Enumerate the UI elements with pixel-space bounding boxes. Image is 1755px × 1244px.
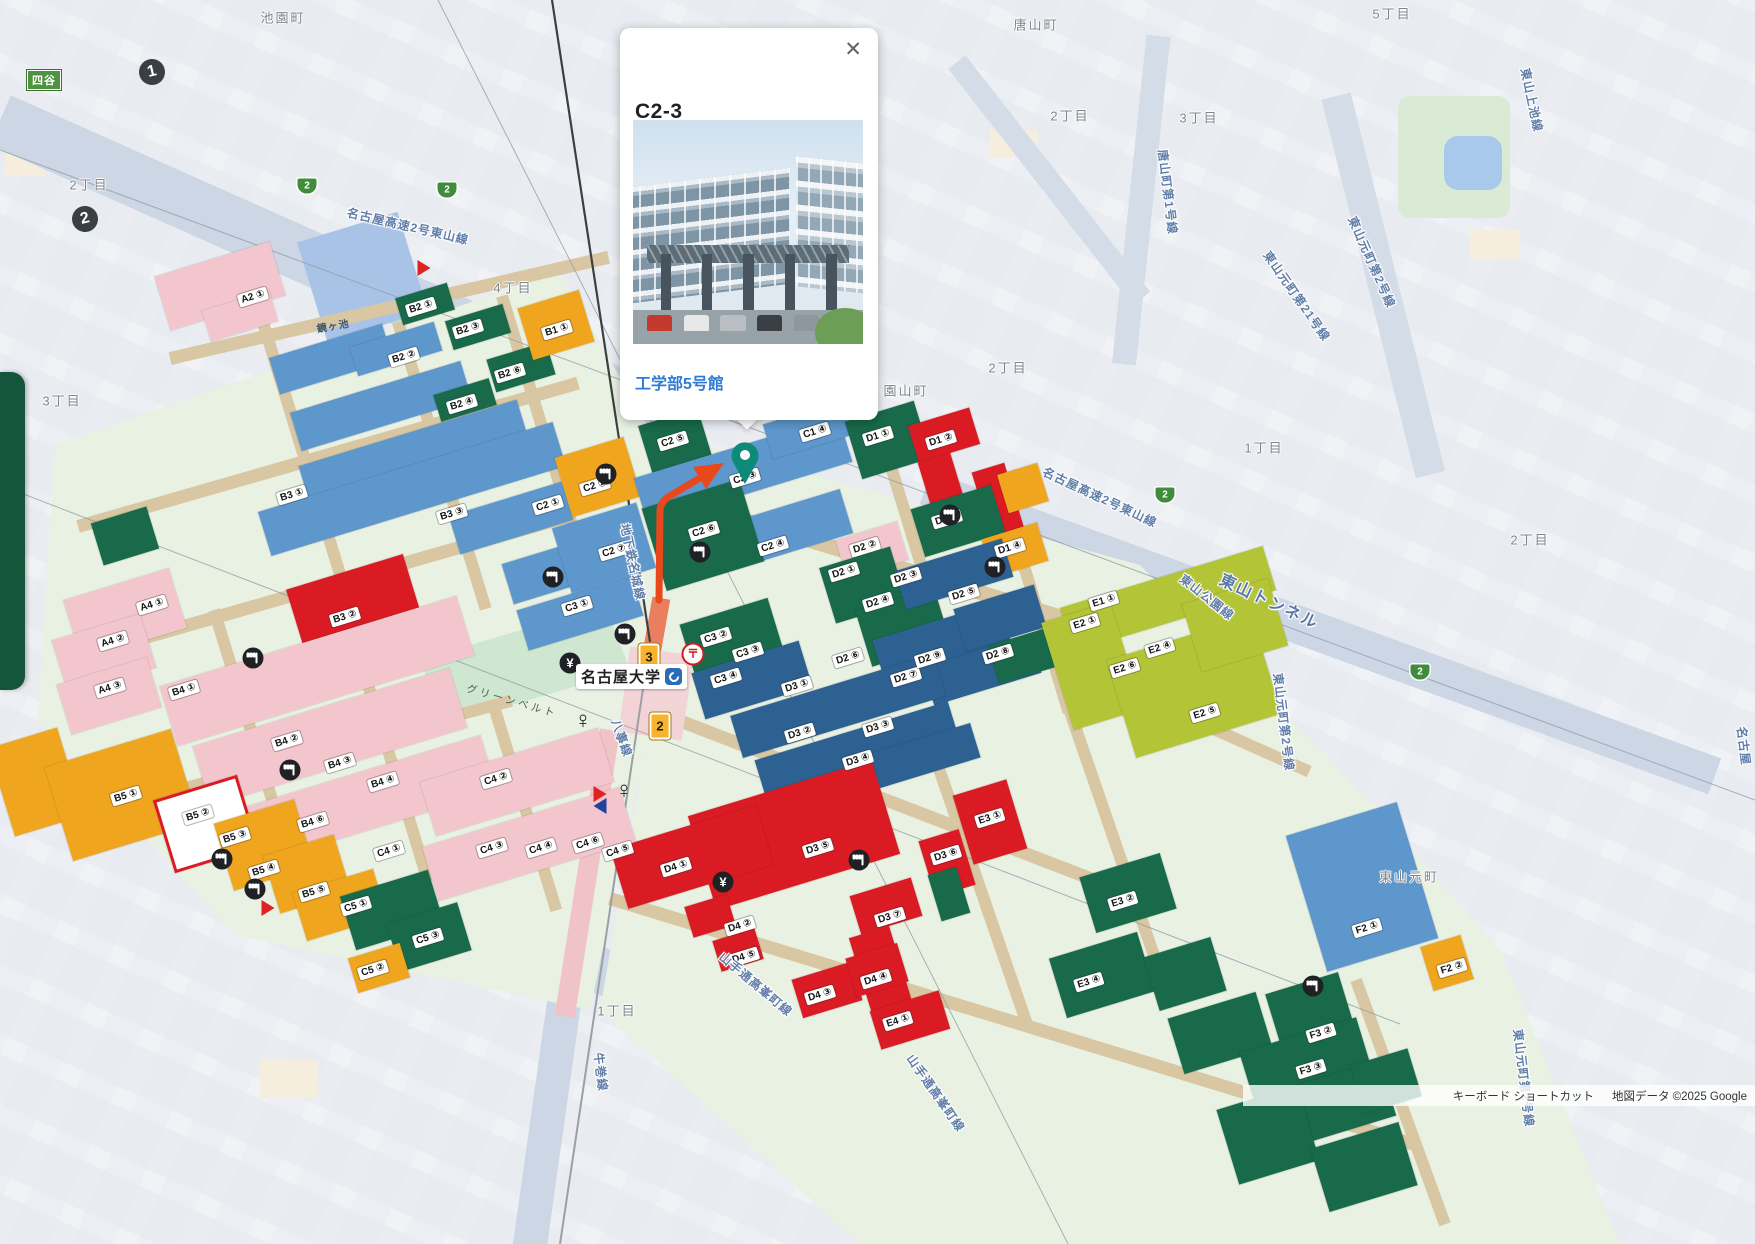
road-label: 八事線 (607, 717, 636, 759)
photo-car (720, 315, 745, 331)
town-label: 3丁目 (42, 391, 81, 410)
subway-station-label[interactable]: 名古屋大学 (576, 664, 687, 689)
town-label: 園山町 (883, 381, 928, 400)
building-label[interactable]: B5 ② (182, 804, 215, 825)
building-label[interactable]: C5 ② (357, 959, 390, 980)
building-label[interactable]: B4 ① (168, 679, 201, 700)
route-shield: 2 (298, 179, 317, 194)
road-label: 名古屋高速2号東山線 (1040, 463, 1160, 531)
town-label: 2丁目 (988, 358, 1027, 377)
restaurant-icon (690, 542, 711, 563)
road-label: グリーンベルト (465, 681, 559, 721)
building-label[interactable]: C2 ⑤ (657, 430, 690, 451)
building-label[interactable]: F3 ③ (1295, 1059, 1326, 1080)
building-label[interactable]: E4 ① (882, 1010, 914, 1031)
photo-car (757, 315, 782, 331)
building-label[interactable]: B3 ③ (436, 503, 469, 524)
road-label: 東山トンネル (1216, 566, 1324, 633)
building-label[interactable]: D4 ① (660, 856, 693, 877)
restaurant-icon (280, 760, 301, 781)
building-label[interactable]: E1 ① (1088, 590, 1120, 611)
restaurant-icon (245, 879, 266, 900)
building-label[interactable]: C3 ② (700, 626, 733, 647)
building-label[interactable]: D2 ② (849, 536, 882, 557)
building-label[interactable]: B2 ⑥ (494, 362, 527, 383)
gate-number-marker: 2 (69, 203, 101, 235)
road-label: 東山元町第2号線 (1344, 213, 1400, 310)
building-label[interactable]: C4 ⑤ (602, 840, 635, 861)
building-label[interactable]: D2 ⑨ (914, 647, 947, 668)
building-label[interactable]: C3 ④ (710, 667, 743, 688)
building-photo[interactable] (633, 120, 863, 344)
building-label[interactable]: D2 ⑦ (890, 666, 923, 687)
building-label[interactable]: A2 ① (237, 286, 270, 307)
blue-triangle-marker (594, 798, 607, 814)
road-label: 東山元町第2号線 (1510, 1028, 1539, 1128)
town-label: 池園町 (260, 8, 305, 27)
building-label[interactable]: C5 ③ (412, 927, 445, 948)
restaurant-icon (1303, 976, 1324, 997)
town-label: 2丁目 (1050, 106, 1089, 125)
building-label[interactable]: C3 ③ (732, 641, 765, 662)
building-label[interactable]: D3 ⑦ (874, 906, 907, 927)
building-label[interactable]: D4 ④ (860, 968, 893, 989)
town-label: 2丁目 (1510, 530, 1549, 549)
restaurant-icon (849, 850, 870, 871)
photo-car (647, 315, 672, 331)
building-label[interactable]: D1 ① (862, 425, 895, 446)
yen-icon: ¥ (713, 872, 734, 893)
road-label: 牛巻線 (590, 1052, 612, 1093)
station-name: 名古屋大学 (581, 666, 661, 687)
building-label[interactable]: B2 ③ (452, 318, 485, 339)
restaurant-icon (543, 567, 564, 588)
town-label: 5丁目 (1372, 4, 1411, 23)
keyboard-shortcuts-button[interactable]: キーボード ショートカット (1453, 1088, 1594, 1104)
road-label: 東山元町第2号線 (1270, 672, 1299, 772)
building-label[interactable]: C4 ④ (525, 837, 558, 858)
building-label[interactable]: D2 ④ (862, 591, 895, 612)
building-label[interactable]: D3 ② (784, 722, 817, 743)
gate-number-marker: 1 (136, 56, 168, 88)
building-link[interactable]: 工学部5号館 (635, 370, 724, 394)
building-label[interactable]: B5 ④ (248, 859, 281, 880)
town-label: 1丁目 (1244, 438, 1283, 457)
building-label[interactable]: D3 ③ (862, 716, 895, 737)
building-label[interactable]: B4 ⑥ (297, 811, 330, 832)
building-label[interactable]: A4 ② (97, 630, 130, 651)
route-shield: 2 (1156, 488, 1175, 503)
building-label[interactable]: D2 ① (828, 561, 861, 582)
map-canvas[interactable]: A2 ①B2 ①B2 ③B2 ②B2 ⑥B2 ④B1 ①B3 ①B3 ③C2 ①… (0, 0, 1755, 1244)
building-label[interactable]: C2 ① (532, 494, 565, 515)
building-label[interactable]: C4 ② (480, 768, 513, 789)
building-label[interactable]: C4 ⑥ (572, 832, 605, 853)
map-attribution: キーボード ショートカット 地図データ ©2025 Google (1243, 1085, 1755, 1106)
restaurant-icon (940, 505, 961, 526)
building-label[interactable]: D4 ② (724, 915, 757, 936)
town-label: 4丁目 (493, 278, 532, 297)
road-label: 東山上池線 (1517, 66, 1547, 133)
road-label: 東山元町第21号線 (1260, 248, 1335, 345)
road-label: 名古屋 (1733, 726, 1755, 767)
building-label[interactable]: D3 ⑥ (930, 844, 963, 865)
building-label[interactable]: B1 ① (541, 319, 574, 340)
building-label[interactable]: B2 ④ (446, 393, 479, 414)
post-office-icon: 〒 (682, 643, 705, 666)
building-label[interactable]: D1 ④ (994, 537, 1027, 558)
building-label[interactable]: D4 ③ (804, 984, 837, 1005)
building-label[interactable]: C3 ① (561, 595, 594, 616)
building-label[interactable]: E2 ④ (1144, 637, 1176, 658)
town-label: 1丁目 (597, 1001, 636, 1020)
photo-car (684, 315, 709, 331)
building-label[interactable]: D3 ⑤ (802, 837, 835, 858)
subway-logo-icon (665, 668, 682, 685)
building-label[interactable]: E3 ④ (1073, 971, 1105, 992)
building-label[interactable]: B4 ② (271, 730, 304, 751)
building-label[interactable]: B5 ① (110, 785, 143, 806)
building-label[interactable]: D2 ⑧ (982, 643, 1015, 664)
building-label[interactable]: E3 ① (974, 807, 1006, 828)
road-label: 鏡ヶ池 (315, 315, 350, 336)
restaurant-icon (243, 648, 264, 669)
building-label[interactable]: B4 ④ (367, 771, 400, 792)
building-label[interactable]: C2 ③ (729, 467, 762, 488)
restaurant-icon (985, 557, 1006, 578)
building-label[interactable]: D2 ③ (890, 566, 923, 587)
building-label[interactable]: F2 ② (1436, 958, 1467, 979)
building-label[interactable]: D2 ⑥ (832, 647, 865, 668)
building-label[interactable]: B5 ⑤ (298, 881, 331, 902)
building-label[interactable]: C5 ① (340, 895, 373, 916)
building-label[interactable]: C2 ⑥ (688, 520, 721, 541)
building-label[interactable]: A4 ③ (94, 677, 127, 698)
restaurant-icon (212, 849, 233, 870)
building-label[interactable]: D3 ④ (842, 749, 875, 770)
red-triangle-marker (262, 900, 275, 916)
building-label[interactable]: E3 ② (1107, 890, 1139, 911)
building-label[interactable]: D3 ① (781, 675, 814, 696)
town-label: 3丁目 (1179, 108, 1218, 127)
building-label[interactable]: F2 ① (1351, 918, 1382, 939)
building-label[interactable]: F3 ② (1305, 1023, 1336, 1044)
map-data-copyright: 地図データ ©2025 Google (1612, 1088, 1747, 1104)
building-label[interactable]: C2 ④ (757, 535, 790, 556)
building-label[interactable]: E2 ⑤ (1189, 702, 1221, 723)
side-panel-tab[interactable] (0, 372, 25, 690)
building-label[interactable]: C1 ④ (799, 421, 832, 442)
road-label: 地下鉄名城線 (617, 522, 650, 602)
close-icon[interactable]: ✕ (840, 36, 866, 64)
town-label: 唐山町 (1013, 15, 1058, 34)
route-shield: 2 (438, 183, 457, 198)
road-label: 唐山町第1号線 (1154, 148, 1181, 235)
town-label: 2丁目 (69, 175, 108, 194)
building-label[interactable]: B3 ① (276, 484, 309, 505)
building-popup: ✕ C2-3 工学部5号館 (620, 28, 878, 420)
building-label[interactable]: B2 ② (388, 346, 421, 367)
red-triangle-marker (418, 260, 431, 276)
building-label[interactable]: E2 ⑥ (1109, 657, 1141, 678)
town-label: 東山元町 (1379, 867, 1439, 886)
subway-exit-badge: 2 (650, 713, 671, 740)
building-label[interactable]: D1 ② (925, 429, 958, 450)
building-label[interactable]: B2 ① (405, 296, 438, 317)
route-shield: 2 (1411, 665, 1430, 680)
building-label[interactable]: B5 ③ (219, 826, 252, 847)
toilet-icon: ♀ (615, 779, 633, 803)
toilet-icon: ♀ (574, 709, 592, 733)
road-label: 山手通高峯町線 (903, 1051, 969, 1135)
building-label[interactable]: C4 ③ (476, 837, 509, 858)
bus-stop-badge: 四谷 (27, 70, 61, 90)
restaurant-icon (615, 624, 636, 645)
road-label: 名古屋高速2号東山線 (345, 204, 470, 249)
restaurant-icon (596, 464, 617, 485)
building-label[interactable]: B4 ③ (324, 752, 357, 773)
building-label[interactable]: B3 ② (329, 606, 362, 627)
building-label[interactable]: A4 ① (136, 594, 169, 615)
building-label[interactable]: C4 ① (373, 840, 406, 861)
building-label[interactable]: D2 ⑤ (948, 583, 981, 604)
building-label[interactable]: E2 ① (1069, 612, 1101, 633)
